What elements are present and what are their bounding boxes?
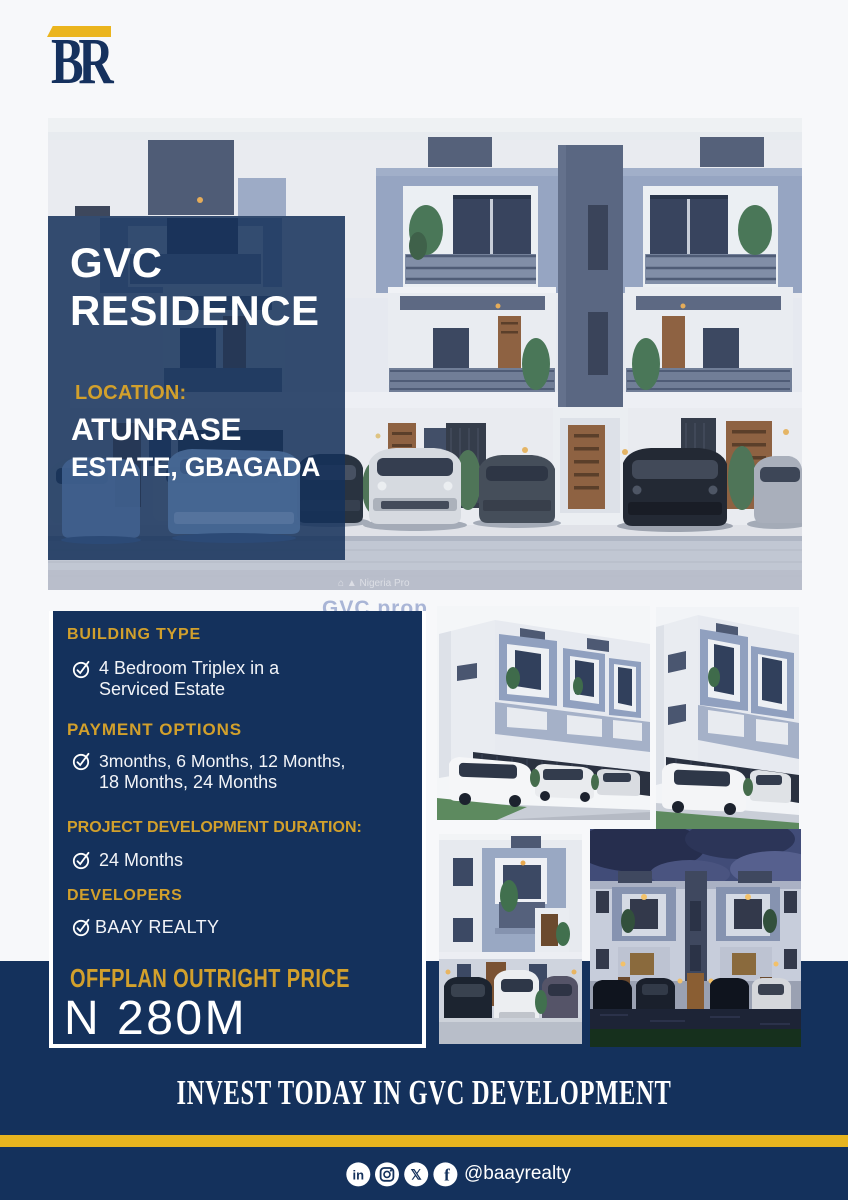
svg-text:in: in	[353, 1167, 365, 1182]
svg-text:𝕏: 𝕏	[411, 1167, 423, 1183]
svg-text:f: f	[444, 1166, 450, 1185]
svg-text:⌂ ▲ Nigeria Pro: ⌂ ▲ Nigeria Pro	[338, 578, 410, 589]
